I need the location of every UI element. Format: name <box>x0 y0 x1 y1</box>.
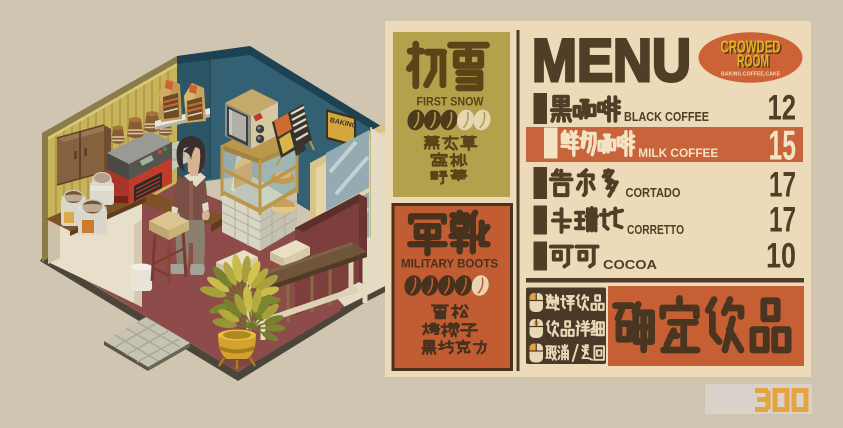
svg-text:BLACK COFFEE: BLACK COFFEE <box>624 110 709 124</box>
svg-text:CORRETTO: CORRETTO <box>627 223 684 237</box>
svg-text:ROOM: ROOM <box>737 51 769 71</box>
svg-text:17: 17 <box>769 165 796 205</box>
svg-text:MILITARY BOOTS: MILITARY BOOTS <box>401 257 498 271</box>
svg-text:BAKING.COFFEE.CAKE: BAKING.COFFEE.CAKE <box>721 72 781 78</box>
svg-text:10: 10 <box>766 236 796 276</box>
svg-text:COCOA: COCOA <box>603 258 657 272</box>
svg-text:MENU: MENU <box>532 27 691 94</box>
svg-text:17: 17 <box>769 200 796 240</box>
svg-text:MILK COFFEE: MILK COFFEE <box>638 146 718 160</box>
svg-text:FIRST SNOW: FIRST SNOW <box>417 95 485 109</box>
svg-text:15: 15 <box>769 122 797 169</box>
svg-text:CORTADO: CORTADO <box>626 186 681 200</box>
